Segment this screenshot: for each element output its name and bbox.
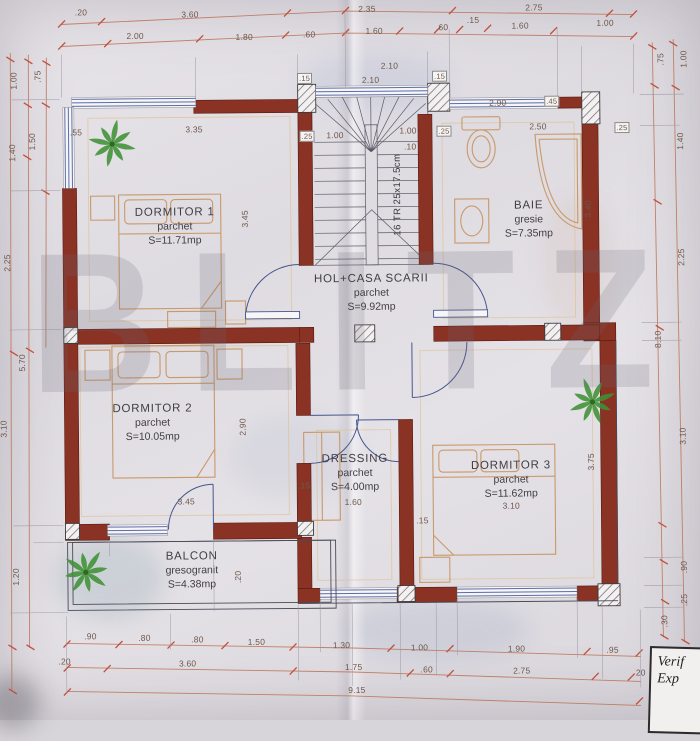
dim-label: 2.25 (676, 248, 686, 265)
room-name: DORMITOR 2 (112, 401, 192, 416)
dim-label: .55 (70, 127, 83, 137)
room-label-dressing: DRESSING parchet S=4.00mp (322, 452, 389, 495)
dim-label: 1.75 (345, 662, 362, 672)
dim-label: 1.00 (8, 72, 18, 89)
dim-label: 1.30 (333, 640, 350, 650)
dim-label: .60 (420, 664, 433, 674)
dim-label: 1.60 (511, 20, 528, 30)
dim-label: 3.45 (240, 210, 250, 227)
room-area: S=7.35mp (505, 226, 553, 240)
room-area: S=11.71mp (135, 233, 215, 248)
room-name: DRESSING (322, 452, 389, 467)
dim-label: .90 (84, 631, 97, 641)
room-area: S=10.05mp (113, 429, 193, 444)
room-finish: gresogranit (166, 563, 219, 577)
dim-labels-layer: .203.602.352.752.001.80.601.60.60.151.60… (0, 0, 700, 723)
room-finish: parchet (135, 219, 215, 234)
room-label-hol: HOL+CASA SCARII parchet S=9.92mp (314, 271, 429, 314)
dim-label: 1.20 (11, 568, 21, 585)
dim-label: 1.40 (7, 144, 17, 161)
room-finish: gresie (505, 212, 553, 226)
dim-label: 2.75 (513, 665, 530, 675)
dim-label: .45 (544, 96, 559, 107)
dim-label: .80 (191, 634, 204, 644)
dim-label: 1.80 (235, 32, 252, 42)
dim-label: 1.50 (248, 637, 265, 647)
dim-label: 2.50 (529, 121, 546, 131)
dim-label: .15 (298, 480, 311, 490)
dim-label: 2.90 (489, 98, 506, 108)
dim-label: .75 (655, 53, 665, 66)
dim-label: .60 (436, 22, 449, 32)
dim-label: 1.60 (365, 26, 382, 36)
room-name: BAIE (505, 198, 553, 212)
dim-label: .25 (299, 131, 314, 142)
dim-label: 1.00 (326, 130, 343, 140)
dim-label: .20 (233, 571, 243, 584)
dim-label: .15 (467, 15, 480, 25)
dim-label: 3.60 (181, 9, 198, 19)
room-finish: parchet (112, 415, 192, 430)
dim-label: 3.35 (185, 124, 202, 134)
dim-label: 2.90 (238, 418, 248, 435)
dim-label: 1.90 (508, 643, 525, 653)
title-block-line1: Verif (657, 653, 700, 672)
room-label-dormitor1: DORMITOR 1 parchet S=11.71mp (135, 205, 215, 248)
dim-label: 2.10 (381, 61, 398, 71)
dim-label: .20 (58, 656, 71, 666)
dim-label: 3.75 (586, 453, 596, 470)
dim-label: 2.35 (358, 4, 375, 14)
room-area: S=9.92mp (314, 299, 429, 314)
dim-label: 1.00 (596, 18, 613, 28)
dim-label: .80 (138, 633, 151, 643)
room-finish: parchet (471, 472, 551, 487)
dim-label: .15 (297, 73, 312, 84)
dim-label: 2.25 (2, 254, 12, 271)
room-area: S=4.38mp (166, 577, 219, 591)
dim-label: 5.70 (17, 354, 27, 371)
dim-label: 1.50 (27, 133, 37, 150)
dim-label: 1.00 (678, 50, 688, 67)
floor-plan-stage: BLITZ .203.602.352.752.001.80.601.60.60.… (0, 0, 700, 723)
dim-label: .30 (659, 615, 669, 628)
dim-label: 1.00 (411, 642, 428, 652)
stair-direction-label: 16 TR 25x17.5cm (392, 153, 404, 235)
dim-label: .20 (75, 7, 88, 17)
room-finish: parchet (322, 466, 389, 481)
room-finish: parchet (314, 285, 429, 300)
dim-label: 1.40 (675, 132, 685, 149)
dim-label: .60 (303, 29, 316, 39)
room-label-baie: BAIE gresie S=7.35mp (505, 198, 554, 240)
room-label-balcon: BALCON gresogranit S=4.38mp (165, 549, 218, 591)
dim-label: 3.45 (178, 496, 195, 506)
dim-label: .25 (436, 126, 451, 137)
dim-label: 3.10 (503, 501, 520, 511)
room-name: DORMITOR 3 (471, 458, 551, 473)
dim-label: 3.10 (678, 427, 688, 444)
room-name: HOL+CASA SCARII (314, 271, 429, 286)
dim-label: .15 (416, 515, 429, 525)
dim-label: 1.60 (345, 497, 362, 507)
dim-label: .95 (606, 645, 619, 655)
title-block: Verif Exp (648, 646, 700, 735)
dim-label: 2.00 (126, 31, 143, 41)
room-label-dormitor2: DORMITOR 2 parchet S=10.05mp (112, 401, 192, 444)
dim-label: 3.10 (0, 420, 9, 437)
room-name: BALCON (165, 549, 218, 563)
room-label-dormitor3: DORMITOR 3 parchet S=11.62mp (471, 458, 551, 501)
dim-label: 3.40 (583, 200, 593, 217)
dim-label: .10 (404, 141, 417, 151)
dim-label: 20 (636, 667, 646, 677)
dim-label: 1.00 (399, 125, 416, 135)
dim-label: 9.15 (348, 685, 365, 695)
dim-label: .25 (679, 594, 689, 607)
dim-label: .15 (432, 71, 447, 82)
dim-label: 8.10 (653, 331, 663, 348)
dim-label: .90 (679, 561, 689, 574)
room-name: DORMITOR 1 (135, 205, 215, 220)
room-area: S=4.00mp (322, 480, 389, 495)
title-block-line2: Exp (657, 670, 700, 689)
dim-label: 2.10 (362, 75, 379, 85)
dim-label: .75 (32, 70, 42, 83)
dim-label: 3.60 (179, 658, 196, 668)
dim-label: .25 (614, 122, 629, 133)
dim-label: 2.75 (525, 2, 542, 12)
room-area: S=11.62mp (471, 486, 551, 501)
